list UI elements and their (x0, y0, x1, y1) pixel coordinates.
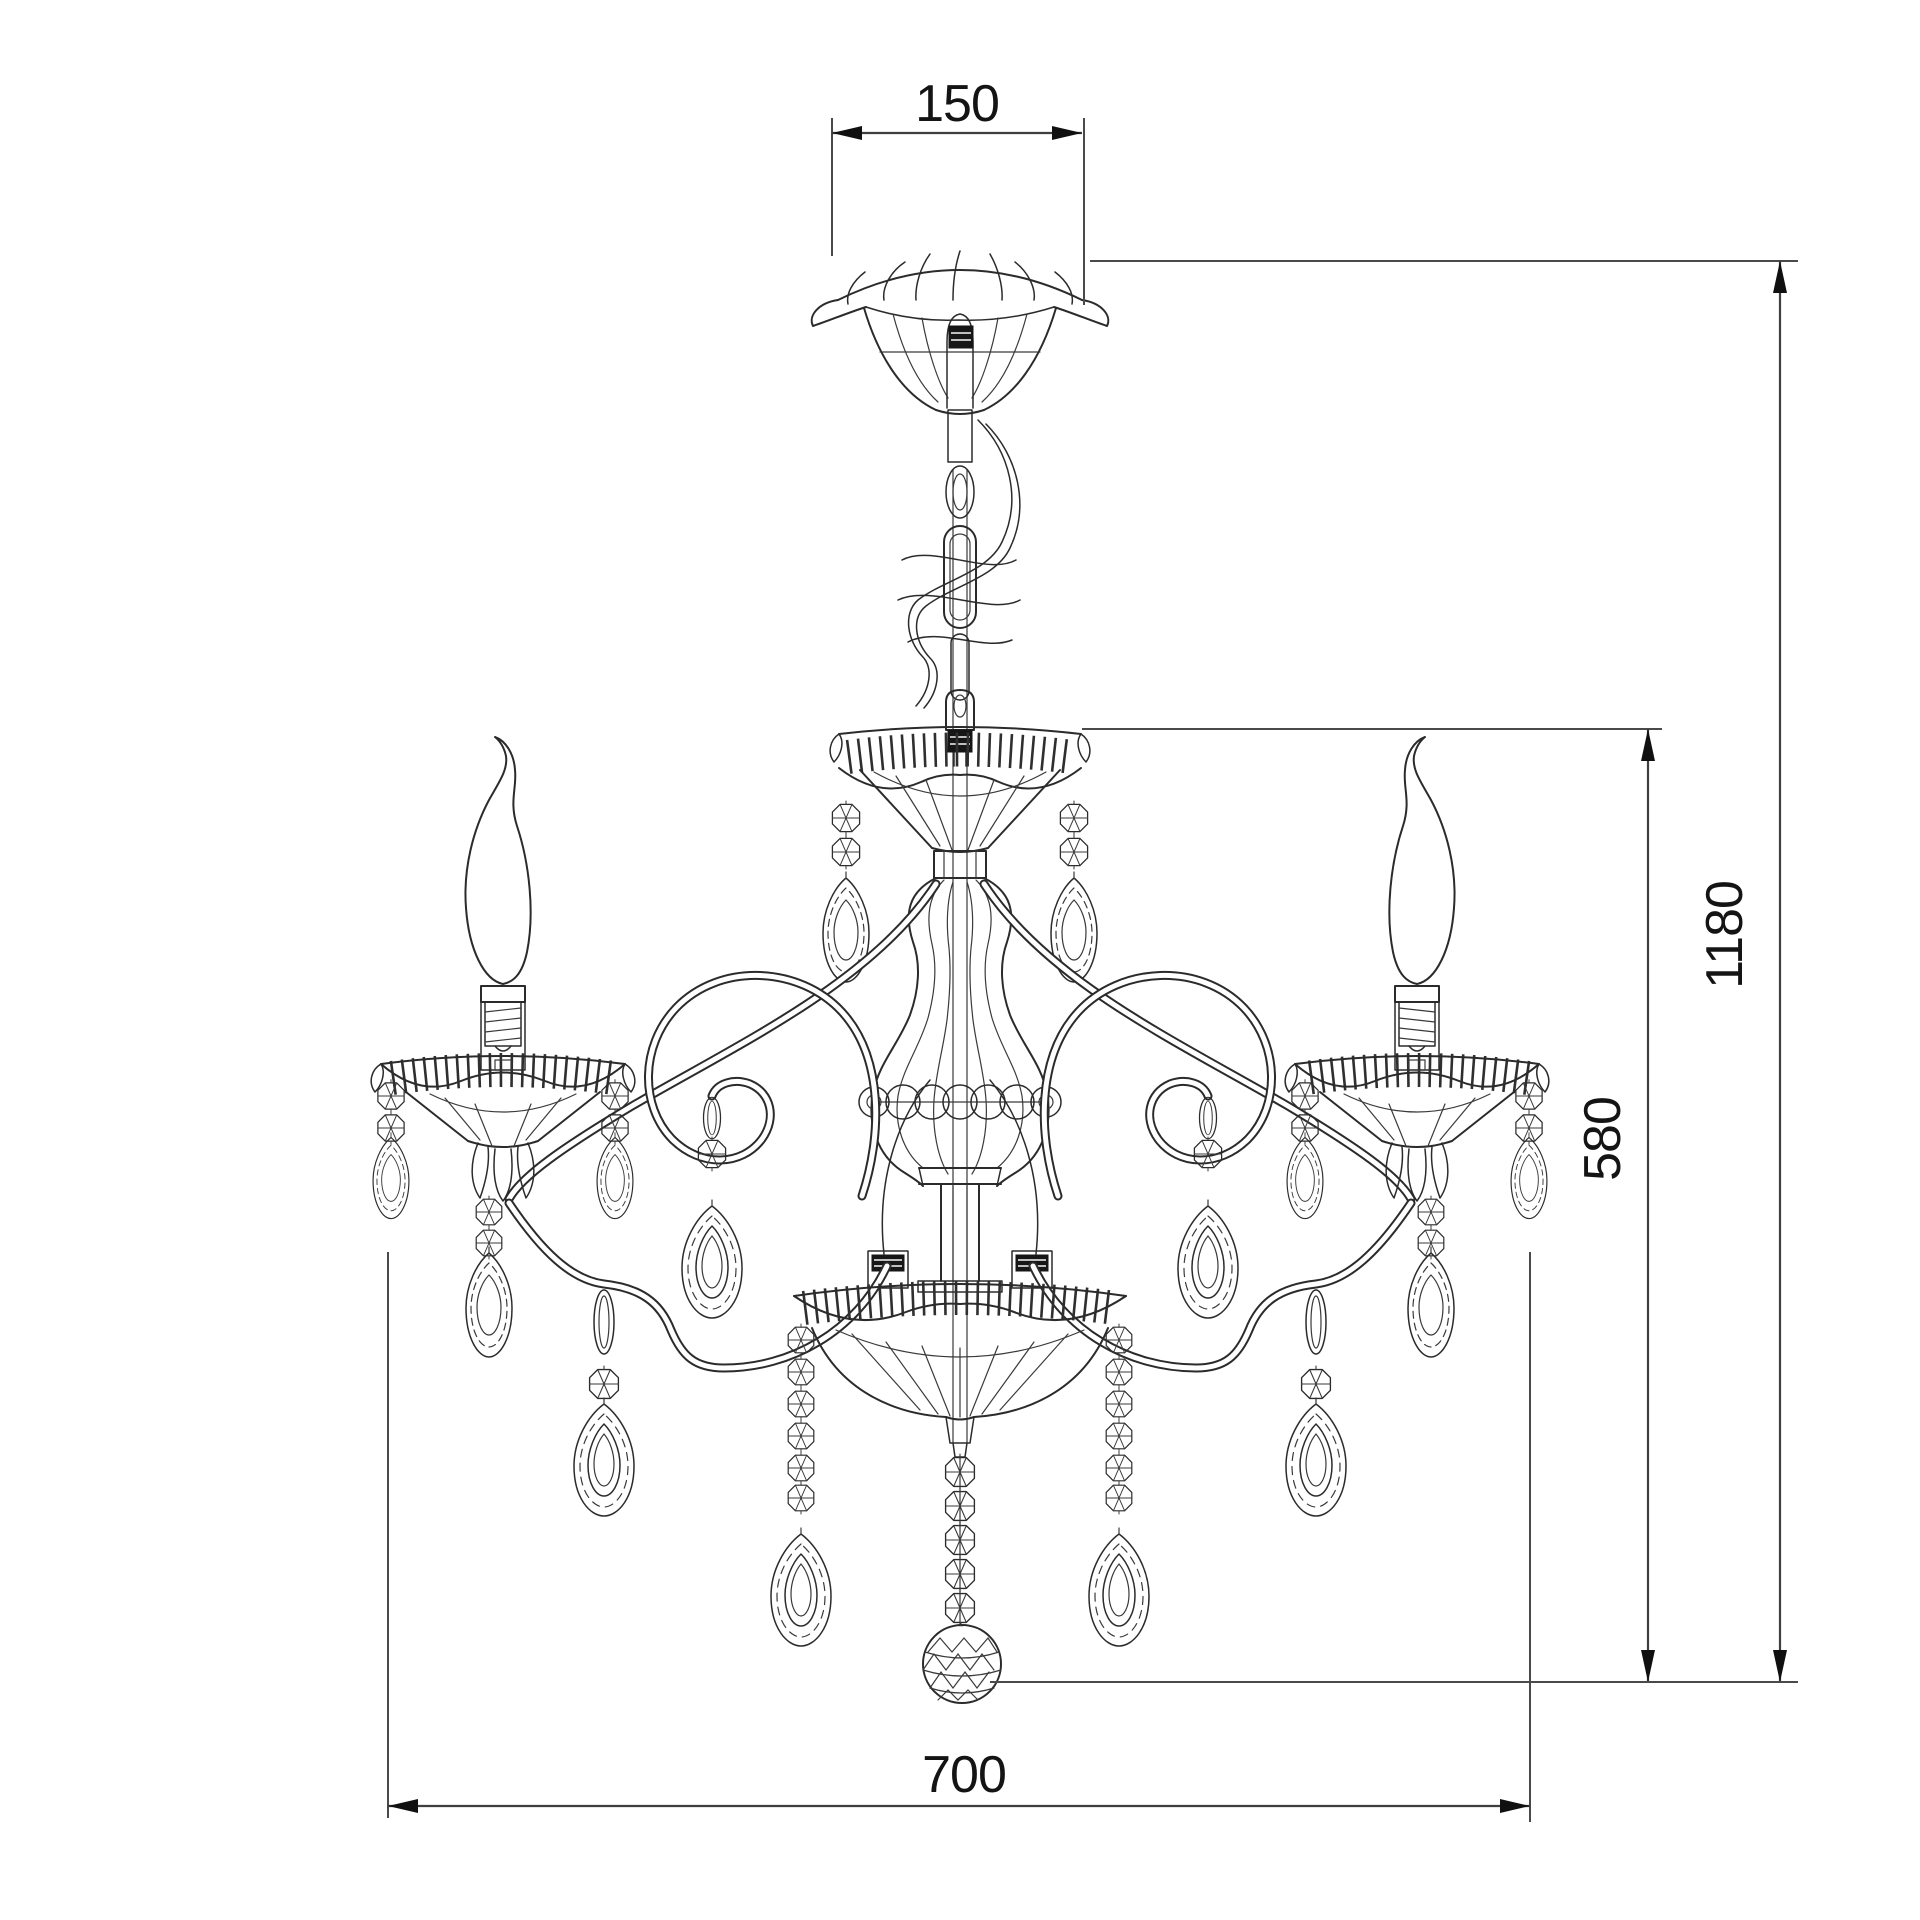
left-arm-assembly (371, 737, 936, 1516)
power-cord (898, 420, 1020, 708)
dim-label-700: 700 (922, 1746, 1006, 1804)
dim-label-580: 580 (1574, 1097, 1632, 1181)
upper-bobeche (823, 727, 1097, 982)
center-strand (946, 1454, 975, 1626)
chandelier-dimension-drawing: 150 1180 580 700 (0, 0, 1920, 1920)
faceted-ball (923, 1622, 1001, 1703)
dimension-body-height: 580 (1082, 729, 1662, 1682)
ceiling-canopy (812, 251, 1109, 462)
glass-baluster-column (859, 851, 1061, 1292)
bottom-bowl (794, 1284, 1126, 1457)
dim-label-1180: 1180 (1696, 881, 1754, 989)
dimension-total-height: 1180 (1090, 261, 1798, 1682)
arm-mounting-blocks (868, 1251, 1052, 1288)
suspension-chain (944, 466, 976, 766)
drawing-canvas: 150 1180 580 700 (0, 0, 1920, 1920)
dim-label-150: 150 (915, 75, 999, 133)
right-arm-assembly (984, 737, 1549, 1516)
